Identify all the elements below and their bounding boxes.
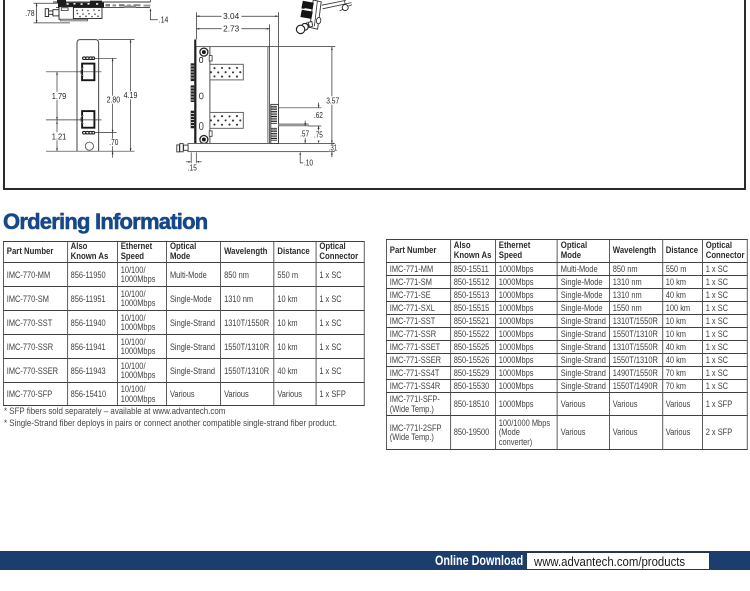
svg-text:.14: .14 <box>159 16 169 25</box>
svg-text:.15: .15 <box>188 164 198 173</box>
svg-text:1.21: 1.21 <box>52 132 67 141</box>
svg-text:1.79: 1.79 <box>52 92 67 101</box>
svg-text:.70: .70 <box>109 138 119 147</box>
svg-text:.78: .78 <box>25 9 34 18</box>
svg-text:.57: .57 <box>300 130 309 139</box>
svg-text:3.57: 3.57 <box>326 96 339 105</box>
svg-text:.75: .75 <box>314 130 324 139</box>
svg-text:3.04: 3.04 <box>223 12 240 21</box>
svg-text:.10: .10 <box>304 159 314 168</box>
svg-text:2.73: 2.73 <box>223 25 239 34</box>
svg-text:2.80: 2.80 <box>107 95 121 104</box>
svg-text:4.19: 4.19 <box>124 91 138 100</box>
svg-text:.31: .31 <box>329 143 338 152</box>
svg-text:.62: .62 <box>314 111 323 120</box>
